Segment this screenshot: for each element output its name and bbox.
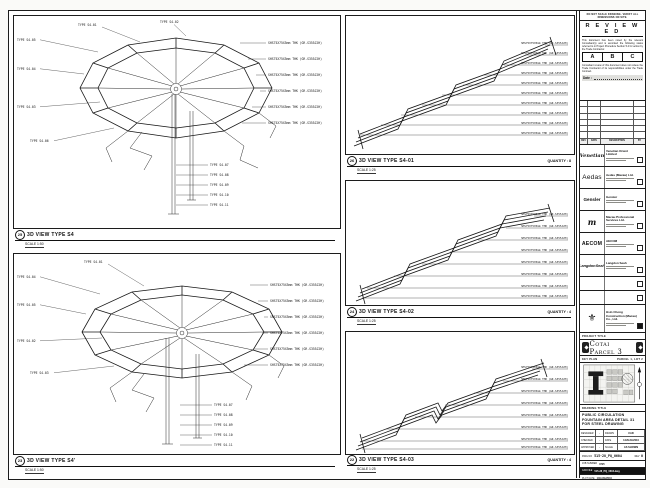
key-plan-map (580, 363, 645, 405)
svg-text:SHS75X75X5mm THK (GR.S355J2H): SHS75X75X5mm THK (GR.S355J2H) (521, 365, 568, 369)
view-title: 3D VIEW TYPE S4-02 (359, 309, 414, 315)
consultant-row-empty (580, 291, 645, 305)
cad-file-name: 515-28_PQ_0604.dwg (594, 470, 619, 473)
drawing-sheet-page: TYPE S4-05TYPE S4-04TYPE S4-03TYPE S4-06… (0, 0, 650, 488)
view-title: 3D VIEW TYPE S4' (27, 458, 76, 464)
svg-text:SHS75X75X5mm THK (GR.S355J2H): SHS75X75X5mm THK (GR.S355J2H) (521, 121, 568, 125)
svg-text:TYPE S4-02: TYPE S4-02 (17, 339, 36, 343)
3d-view-s4-02-drawing: SHS75X75X5mm THK (GR.S355J2H)SHS75X75X5m… (346, 181, 574, 305)
job-number: 0725 (599, 463, 605, 466)
consultant-row-gensler: Gensler Gensler (580, 189, 645, 211)
sheet-note: DO NOT SCALE DRAWING. VERIFY ALL DIMENSI… (580, 11, 645, 21)
consultant-row-mps: m Macau Professional Services Ltd. (580, 211, 645, 233)
consultant-row-langdon-seah: LangdonSeah Langdon Seah (580, 255, 645, 277)
svg-text:SHS75X75X5mm THK (GR.S355J2H): SHS75X75X5mm THK (GR.S355J2H) (521, 445, 568, 449)
svg-text:TYPE S4-08: TYPE S4-08 (210, 173, 229, 177)
drawing-title: PUBLIC CIRCULATION FOUNTAIN AREA DETAIL … (580, 412, 645, 430)
svg-text:TYPE S4-10: TYPE S4-10 (210, 193, 229, 197)
svg-text:SHS75X75X5mm THK (GR.S355J2H): SHS75X75X5mm THK (GR.S355J2H) (270, 315, 324, 319)
svg-text:SHS75X75X5mm THK (GR.S355J2H): SHS75X75X5mm THK (GR.S355J2H) (268, 73, 322, 77)
scale-note: SCALE 1:25 (357, 168, 376, 174)
viewport-3d-view-s4-02: SHS75X75X5mm THK (GR.S355J2H)SHS75X75X5m… (345, 180, 575, 306)
quantity-note: QUANTITY : 4 (548, 310, 572, 314)
aecom-logo: AECOM (580, 241, 604, 247)
svg-text:SHS75X75X5mm THK (GR.S355J2H): SHS75X75X5mm THK (GR.S355J2H) (521, 401, 568, 405)
status-checkbox (637, 179, 643, 185)
3d-view-s4-drawing: TYPE S4-05TYPE S4-04TYPE S4-03TYPE S4-06… (14, 16, 340, 228)
svg-text:SHS75X75X5mm THK (GR.S355J2H): SHS75X75X5mm THK (GR.S355J2H) (521, 224, 568, 228)
parcel-label: PARCEL 1, LOT 2 (617, 358, 643, 361)
3d-view-s4-prime-drawing: TYPE S4-04TYPE S4-05TYPE S4-02TYPE S4-03… (14, 254, 340, 454)
lion-emblem-left (582, 342, 589, 353)
consultant-row-hsin-chong: ⚜ Hsin Chong Construction (Macau) Co., L… (580, 305, 645, 333)
viewport-3d-view-s4-prime: TYPE S4-04TYPE S4-05TYPE S4-02TYPE S4-03… (13, 253, 341, 455)
panel-label-s4-02: 24 3D VIEW TYPE S4-02 QUANTITY : 4 (347, 307, 571, 318)
drawing-title-strip: DRAWING TITLE (580, 405, 645, 412)
svg-text:SHS75X75X5mm THK (GR.S355J2H): SHS75X75X5mm THK (GR.S355J2H) (521, 81, 568, 85)
svg-text:TYPE S4-03: TYPE S4-03 (30, 371, 49, 375)
svg-text:SHS75X75X5mm THK (GR.S355J2H): SHS75X75X5mm THK (GR.S355J2H) (521, 131, 568, 135)
svg-text:TYPE S4-05: TYPE S4-05 (17, 38, 36, 42)
svg-text:TYPE S4-08: TYPE S4-08 (214, 413, 233, 417)
svg-text:SHS75X75X5mm THK (GR.S355J2H): SHS75X75X5mm THK (GR.S355J2H) (521, 101, 568, 105)
key-plan-strip: KEY PLAN PARCEL 1, LOT 2 (580, 356, 645, 363)
svg-text:TYPE S4-07: TYPE S4-07 (210, 163, 229, 167)
svg-text:SHS75X75X5mm THK (GR.S355J2H): SHS75X75X5mm THK (GR.S355J2H) (521, 413, 568, 417)
svg-text:SHS75X75X5mm THK (GR.S355J2H): SHS75X75X5mm THK (GR.S355J2H) (521, 212, 568, 216)
consultant-row-empty (580, 277, 645, 291)
plot-date-row: PLOT DATE 14/AUG/2010 (580, 475, 645, 482)
stamp-title: R E V I E W E D (582, 22, 643, 37)
scale-note: SCALE 1:50 (25, 468, 44, 474)
svg-text:TYPE S4-11: TYPE S4-11 (210, 203, 229, 207)
lion-emblem-right (636, 342, 643, 353)
review-stamp: R E V I E W E D This document has been n… (580, 21, 645, 101)
panel-label-s4-01: 26 3D VIEW TYPE S4-01 QUANTITY : 8 (347, 156, 571, 167)
svg-text:SHS75X75X5mm THK (GR.S355J2H): SHS75X75X5mm THK (GR.S355J2H) (521, 260, 568, 264)
svg-text:TYPE S4-01: TYPE S4-01 (78, 23, 97, 27)
3d-view-s4-01-drawing: SHS75X75X5mm THK (GR.S355J2H)SHS75X75X5m… (346, 16, 574, 154)
quantity-note: QUANTITY : 4 (548, 458, 572, 462)
status-checkbox (637, 157, 643, 163)
hsin-chong-emblem: ⚜ (580, 314, 604, 324)
status-checkbox (637, 295, 643, 301)
status-option-b: B (603, 53, 623, 61)
quantity-note: QUANTITY : 8 (548, 159, 572, 163)
view-title: 3D VIEW TYPE S4 (27, 232, 74, 238)
detail-bubble: 25 (15, 230, 25, 240)
detail-bubble: 26 (347, 156, 357, 166)
svg-text:TYPE S4-02: TYPE S4-02 (160, 20, 179, 24)
panel-label-s4-03: 22 3D VIEW TYPE S4-03 QUANTITY : 4 (347, 455, 571, 466)
svg-text:TYPE S4-09: TYPE S4-09 (214, 423, 233, 427)
stamp-date-row: Date : (582, 75, 643, 81)
status-checkbox (637, 323, 643, 329)
stamp-paragraph: This document has been noted by the rele… (582, 39, 643, 51)
dwg-number-row: DWG NO 515-28_PQ_0604 REV0 (580, 452, 645, 461)
viewport-3d-view-s4-03: SHS75X75X5mm THK (GR.S355J2H)SHS75X75X5m… (345, 331, 575, 455)
svg-text:TYPE S4-11: TYPE S4-11 (214, 443, 233, 447)
round-feature (622, 373, 633, 384)
dwg-number: 515-28_PQ_0604 (594, 454, 622, 458)
drawing-info-table: DESIGNER-DRAWNCAD CHECKED-DATE14/AUG/201… (580, 430, 645, 452)
svg-text:SHS75X75X5mm THK (GR.S355J2H): SHS75X75X5mm THK (GR.S355J2H) (521, 71, 568, 75)
status-checkbox (637, 281, 643, 287)
svg-text:SHS75X75X5mm THK (GR.S355J2H): SHS75X75X5mm THK (GR.S355J2H) (270, 347, 324, 351)
svg-text:SHS75X75X5mm THK (GR.S355J2H): SHS75X75X5mm THK (GR.S355J2H) (521, 41, 568, 45)
key-plan-drawing (581, 364, 644, 403)
svg-text:TYPE S4-01: TYPE S4-01 (84, 260, 103, 264)
panel-label-s4-prime: 23 3D VIEW TYPE S4' (15, 456, 335, 467)
stamp-status-options: A B C (582, 52, 643, 62)
scale-note: SCALE 1:25 (357, 319, 376, 325)
svg-text:TYPE S4-03: TYPE S4-03 (17, 105, 36, 109)
detail-bubble: 22 (347, 455, 357, 465)
title-block: DO NOT SCALE DRAWING. VERIFY ALL DIMENSI… (579, 11, 645, 478)
status-option-c: C (623, 53, 642, 61)
svg-text:SHS75X75X5mm THK (GR.S355J2H): SHS75X75X5mm THK (GR.S355J2H) (268, 57, 322, 61)
svg-text:SHS75X75X5mm THK (GR.S355J2H): SHS75X75X5mm THK (GR.S355J2H) (268, 121, 322, 125)
svg-text:SHS75X75X5mm THK (GR.S355J2H): SHS75X75X5mm THK (GR.S355J2H) (521, 389, 568, 393)
status-checkbox (637, 267, 643, 273)
svg-text:SHS75X75X5mm THK (GR.S355J2H): SHS75X75X5mm THK (GR.S355J2H) (270, 299, 324, 303)
detail-bubble: 23 (15, 456, 25, 466)
revision-number: 0 (641, 454, 643, 458)
status-checkbox (637, 223, 643, 229)
langdon-seah-logo: LangdonSeah (580, 263, 604, 268)
svg-text:SHS75X75X5mm THK (GR.S355J2H): SHS75X75X5mm THK (GR.S355J2H) (521, 437, 568, 441)
mps-logo: m (580, 217, 604, 227)
svg-text:TYPE S4-07: TYPE S4-07 (214, 403, 233, 407)
svg-text:TYPE S4-10: TYPE S4-10 (214, 433, 233, 437)
svg-text:SHS75X75X5mm THK (GR.S355J2H): SHS75X75X5mm THK (GR.S355J2H) (521, 284, 568, 288)
view-title: 3D VIEW TYPE S4-01 (359, 158, 414, 164)
3d-view-s4-03-drawing: SHS75X75X5mm THK (GR.S355J2H)SHS75X75X5m… (346, 332, 574, 454)
scale-note: SCALE 1:25 (357, 467, 376, 473)
status-checkbox (637, 201, 643, 207)
date-label: Date : (583, 76, 592, 80)
svg-text:TYPE S4-04: TYPE S4-04 (17, 275, 36, 279)
svg-text:SHS75X75X5mm THK (GR.S355J2H): SHS75X75X5mm THK (GR.S355J2H) (521, 111, 568, 115)
detail-bubble: 24 (347, 307, 357, 317)
scale-note: SCALE 1:50 (25, 242, 44, 248)
consultant-row-venetian: Venetian Venetian Orient Limited (580, 145, 645, 167)
svg-text:SHS75X75X5mm THK (GR.S355J2H): SHS75X75X5mm THK (GR.S355J2H) (521, 377, 568, 381)
status-checkbox (637, 245, 643, 251)
svg-text:SHS75X75X5mm THK (GR.S355J2H): SHS75X75X5mm THK (GR.S355J2H) (521, 236, 568, 240)
project-banner: Cotai Parcel 3 (580, 340, 645, 356)
revision-table-header: REV DATE DESCRIPTION BY (580, 139, 645, 144)
svg-text:SHS75X75X5mm THK (GR.S355J2H): SHS75X75X5mm THK (GR.S355J2H) (521, 425, 568, 429)
stamp-paragraph: Consultant review of this document does … (582, 64, 643, 73)
plot-date: 14/AUG/2010 (597, 477, 612, 480)
viewport-3d-view-s4-01: SHS75X75X5mm THK (GR.S355J2H)SHS75X75X5m… (345, 15, 575, 155)
job-number-row: JOB NUMBER 0725 (580, 461, 645, 468)
project-name: Cotai Parcel 3 (589, 340, 635, 356)
svg-text:SHS75X75X5mm THK (GR.S355J2H): SHS75X75X5mm THK (GR.S355J2H) (270, 331, 324, 335)
consultant-row-aedas: Aedas Aedas (Macau) Ltd. (580, 167, 645, 189)
svg-text:SHS75X75X5mm THK (GR.S355J2H): SHS75X75X5mm THK (GR.S355J2H) (521, 272, 568, 276)
svg-text:SHS75X75X5mm THK (GR.S355J2H): SHS75X75X5mm THK (GR.S355J2H) (268, 89, 322, 93)
north-arrow (637, 367, 641, 400)
svg-text:TYPE S4-09: TYPE S4-09 (210, 183, 229, 187)
svg-text:SHS75X75X5mm THK (GR.S355J2H): SHS75X75X5mm THK (GR.S355J2H) (521, 91, 568, 95)
svg-text:TYPE S4-05: TYPE S4-05 (17, 303, 36, 307)
svg-text:SHS75X75X5mm THK (GR.S355J2H): SHS75X75X5mm THK (GR.S355J2H) (521, 248, 568, 252)
svg-text:TYPE S4-06: TYPE S4-06 (30, 139, 49, 143)
svg-text:SHS75X75X5mm THK (GR.S355J2H): SHS75X75X5mm THK (GR.S355J2H) (268, 105, 322, 109)
svg-text:SHS75X75X5mm THK (GR.S355J2H): SHS75X75X5mm THK (GR.S355J2H) (270, 363, 324, 367)
venetian-logo: Venetian (580, 153, 604, 159)
view-title: 3D VIEW TYPE S4-03 (359, 457, 414, 463)
svg-text:SHS75X75X5mm THK (GR.S355J2H): SHS75X75X5mm THK (GR.S355J2H) (521, 61, 568, 65)
sheet-border: TYPE S4-05TYPE S4-04TYPE S4-03TYPE S4-06… (8, 10, 646, 480)
svg-text:TYPE S4-04: TYPE S4-04 (17, 67, 36, 71)
svg-text:SHS75X75X5mm THK (GR.S355J2H): SHS75X75X5mm THK (GR.S355J2H) (521, 51, 568, 55)
consultant-row-aecom: AECOM AECOM (580, 233, 645, 255)
aedas-logo: Aedas (580, 174, 604, 181)
svg-text:SHS75X75X5mm THK (GR.S355J2H): SHS75X75X5mm THK (GR.S355J2H) (521, 294, 568, 298)
panel-label-s4: 25 3D VIEW TYPE S4 (15, 230, 335, 241)
svg-text:SHS75X75X5mm THK (GR.S355J2H): SHS75X75X5mm THK (GR.S355J2H) (270, 283, 324, 287)
viewport-3d-view-s4: TYPE S4-05TYPE S4-04TYPE S4-03TYPE S4-06… (13, 15, 341, 229)
cad-file-row: CAD FILE 515-28_PQ_0604.dwg (580, 468, 645, 475)
date-line (594, 76, 642, 80)
svg-text:SHS75X75X5mm THK (GR.S355J2H): SHS75X75X5mm THK (GR.S355J2H) (268, 41, 322, 45)
gensler-logo: Gensler (580, 197, 604, 202)
status-option-a: A (583, 53, 603, 61)
revision-table: REV DATE DESCRIPTION BY (580, 101, 645, 145)
